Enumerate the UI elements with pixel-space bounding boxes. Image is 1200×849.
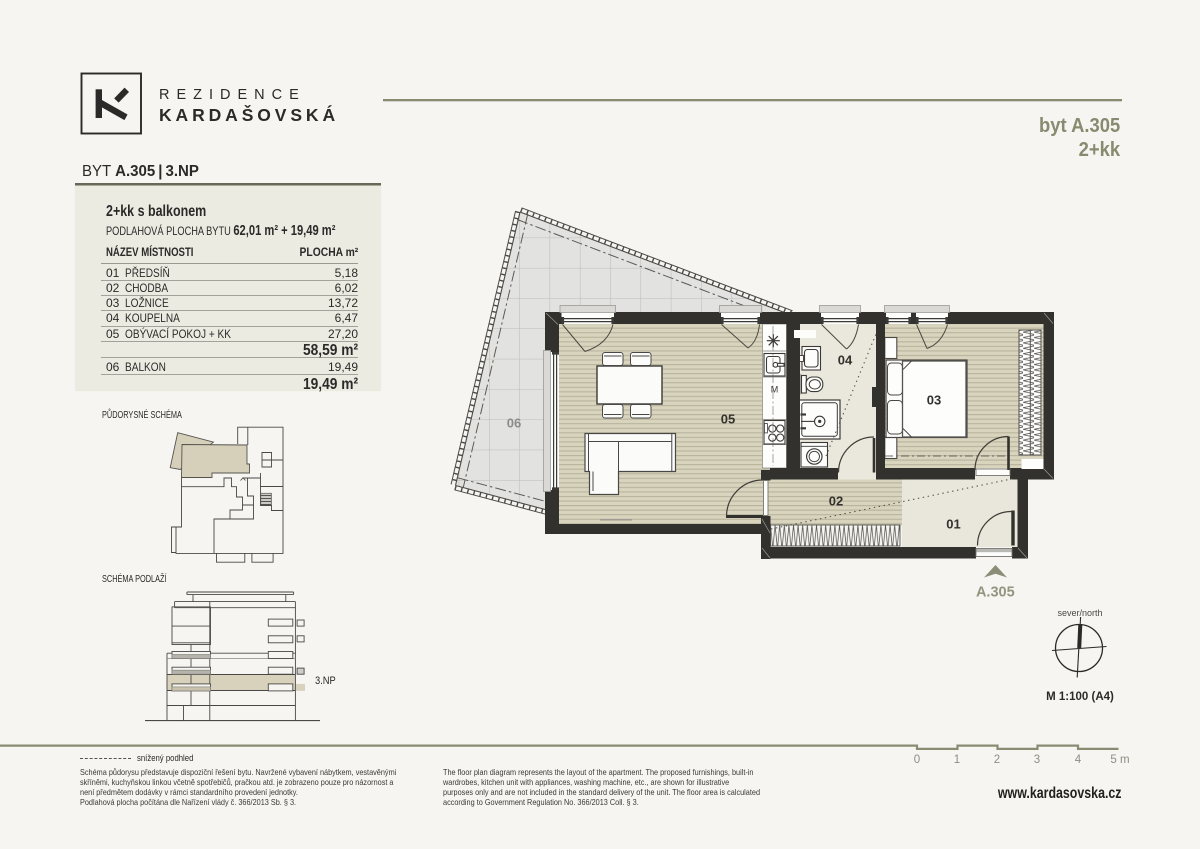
svg-text:04: 04 (838, 353, 853, 368)
svg-text:03: 03 (927, 393, 941, 408)
svg-text:06: 06 (507, 416, 521, 431)
svg-text:A.305: A.305 (976, 585, 1015, 601)
svg-text:05: 05 (721, 412, 735, 427)
svg-text:M: M (771, 385, 779, 395)
svg-text:02: 02 (829, 494, 843, 509)
svg-text:01: 01 (946, 517, 960, 532)
